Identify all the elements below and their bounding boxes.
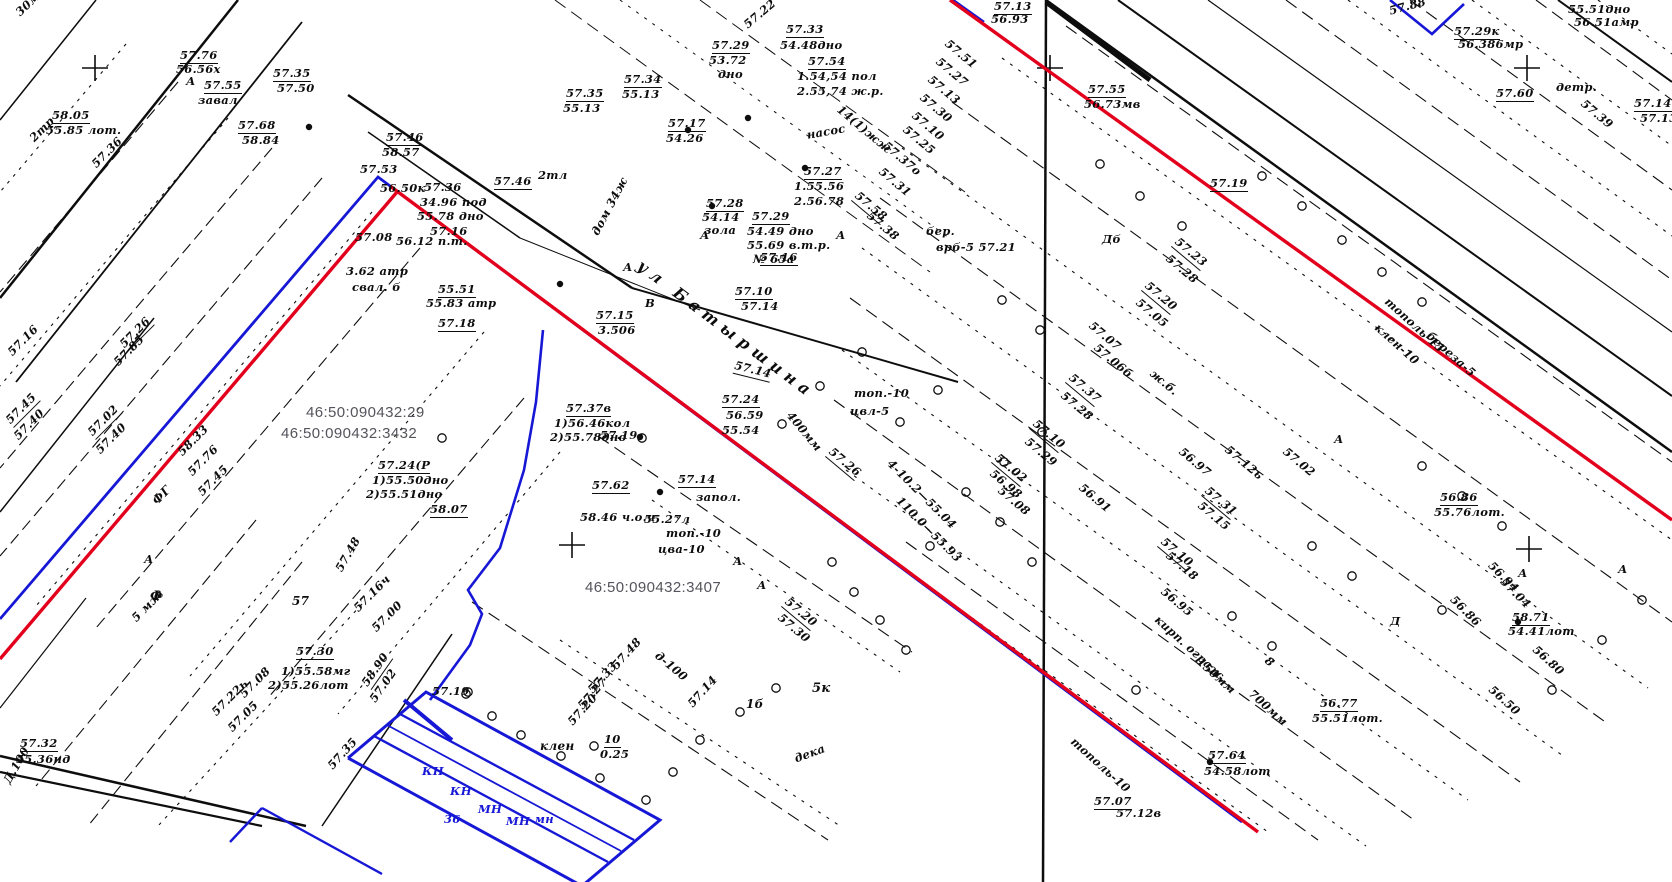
map-label: 57.17 (668, 118, 706, 132)
survey-line (952, 102, 1672, 622)
tree-circle (590, 742, 598, 750)
map-label: 57.19 (1210, 178, 1248, 192)
map-label: 58.07 (430, 504, 468, 518)
map-label: 55.13 (622, 89, 660, 101)
boundary-line-blue (374, 736, 608, 862)
map-label: 55.13 (563, 103, 601, 115)
survey-line (598, 436, 912, 652)
map-label: 2.56.78 (794, 196, 844, 208)
tree-circle (642, 796, 650, 804)
boundary-line-blue (262, 808, 382, 874)
tree-circle (1028, 558, 1036, 566)
map-label: 1.55.56 (794, 181, 844, 193)
map-label: 57.30 (296, 646, 334, 660)
map-label: В (645, 298, 655, 310)
map-label: 57.24 (722, 394, 760, 408)
map-label: дно (718, 69, 743, 81)
map-label: 2)55.26лот (268, 680, 349, 692)
map-label: 56.93 (991, 14, 1029, 26)
tree-circle (1298, 202, 1306, 210)
map-label: 57.33 (786, 24, 824, 38)
map-label: 57.14 (741, 301, 779, 313)
tree-circle (596, 774, 604, 782)
tree-circle (998, 296, 1006, 304)
map-label: 57.08 (355, 232, 393, 244)
map-label: 2.55,74 ж.р. (797, 86, 884, 98)
map-label: запол. (696, 492, 741, 504)
survey-line (0, 598, 86, 708)
tree-circle (1418, 298, 1426, 306)
map-label: 56.73мв (1084, 99, 1141, 111)
map-label: 57.24(Р (378, 460, 430, 474)
tree-circle (1096, 160, 1104, 168)
map-label: 58.05 (52, 110, 90, 124)
map-label: 57.15 (596, 310, 634, 324)
map-label: 1)55.50дно (372, 475, 449, 487)
map-label: А (1518, 568, 1528, 580)
map-label: А (836, 230, 846, 242)
tree-circle (1548, 686, 1556, 694)
survey-line (1046, 0, 1672, 452)
survey-line (834, 400, 1414, 820)
tree-circle (1136, 192, 1144, 200)
map-label: 57.29 (752, 211, 790, 225)
tree-circle (1228, 612, 1236, 620)
map-label: 57.35 (273, 68, 311, 82)
cadastral-number-label: 46:50:090432:3432 (281, 425, 417, 442)
tree-circle (517, 731, 525, 739)
tree-circle (1036, 326, 1044, 334)
map-label: 56.50к (380, 183, 426, 195)
map-label: 57.46 (494, 176, 532, 190)
map-label: 36 (444, 814, 461, 826)
tree-circle (1438, 606, 1446, 614)
tree-circle (1258, 172, 1266, 180)
survey-line (1002, 58, 1672, 540)
map-label: 57.46 (386, 132, 424, 146)
map-label: 57.60 (1496, 88, 1534, 102)
tree-circle (1418, 462, 1426, 470)
map-label: клен (540, 740, 575, 752)
tree-circle (1378, 268, 1386, 276)
map-label: свал. б (352, 282, 401, 294)
map-label: детр. (1556, 82, 1597, 94)
map-label: 57.16 (430, 226, 468, 238)
map-label: 57.12в (1116, 808, 1161, 820)
map-label: А (1334, 434, 1344, 446)
map-label: 56.51амр (1574, 17, 1639, 29)
tree-circle (438, 434, 446, 442)
map-label: топ.-10 (666, 528, 721, 540)
tree-circle (902, 646, 910, 654)
tree-circle (1598, 636, 1606, 644)
map-label: КН (422, 766, 444, 778)
map-label: А (700, 230, 710, 242)
map-label: 55.54 (722, 425, 760, 437)
map-label: 34.96 под (420, 197, 487, 209)
tree-circle (1338, 236, 1346, 244)
map-label: А (144, 554, 154, 566)
map-label: 57.19 (600, 430, 638, 442)
map-label: 2тл (538, 170, 568, 182)
survey-line (158, 604, 362, 826)
map-label: врб-5 57.21 (936, 242, 1016, 254)
map-label: 57.62 (592, 480, 630, 494)
map-label: А (757, 580, 767, 592)
tree-circle (850, 588, 858, 596)
map-label: 54.26 (666, 133, 704, 145)
map-label: 57.14 (1634, 98, 1672, 112)
map-label: 57.64 (1208, 750, 1246, 764)
tree-circle (736, 708, 744, 716)
map-label: 57.35 (566, 88, 604, 102)
map-label: Дб (1102, 234, 1121, 246)
map-label: 54.14 (702, 212, 740, 224)
map-label: 1)55.58мг (281, 666, 351, 678)
map-label: цвл-5 (850, 406, 889, 418)
tree-circle (934, 386, 942, 394)
tree-circle (778, 420, 786, 428)
map-label: 55.51лот. (1312, 713, 1383, 725)
map-label: 5к (812, 682, 830, 695)
tree-circle (876, 616, 884, 624)
map-label: 56.56х (176, 64, 221, 76)
boundary-line-blue (387, 725, 621, 851)
map-label: 56.86 (1440, 492, 1478, 506)
map-label: 57.13 (1640, 113, 1672, 125)
map-label: 58.57 (382, 147, 420, 159)
map-label: цва-10 (658, 544, 705, 556)
utility-dot (657, 489, 663, 495)
tree-circle (828, 558, 836, 566)
map-label: 10 (604, 734, 621, 748)
map-label: 57.50 (277, 83, 315, 95)
map-label: 57.19 (432, 686, 470, 698)
map-label: мн (534, 814, 554, 826)
map-label: 57.16 (760, 252, 798, 266)
boundary-line-blue (953, 0, 984, 22)
map-label: 57.29 (712, 40, 750, 54)
survey-line (902, 148, 1648, 688)
survey-line (0, 756, 306, 826)
map-label: бер. (926, 226, 955, 238)
map-label: 57.18 (438, 318, 476, 332)
map-label: МН (478, 804, 502, 816)
utility-dot (637, 434, 643, 440)
map-label: А (733, 556, 743, 568)
map-label: 57.53 (360, 164, 398, 176)
map-canvas[interactable]: 30мм чер.57.3557.50А57.55завал57.7656.56… (0, 0, 1672, 882)
map-label: 57.55 (1088, 84, 1126, 98)
map-label: 57.27 (804, 166, 842, 180)
map-label: 57.54 (808, 56, 846, 70)
survey-line (1348, 0, 1672, 236)
map-label: 56.77 (1320, 698, 1358, 712)
map-label: 55.83 атр (426, 298, 496, 310)
map-label: 53.72 (709, 55, 747, 67)
map-label: 56.386мр (1458, 39, 1523, 51)
map-label: А (186, 76, 196, 88)
map-label: 54.49 дно (747, 226, 814, 238)
map-label: 57.37в (566, 403, 611, 417)
map-label: 2)55.51дно (366, 489, 443, 501)
map-label: 55.85 лот. (46, 125, 121, 137)
tree-circle (772, 684, 780, 692)
tree-circle (1308, 542, 1316, 550)
survey-line (0, 0, 96, 120)
tree-circle (557, 752, 565, 760)
survey-line (842, 350, 1468, 800)
utility-dot (306, 124, 312, 130)
tree-circle (1498, 522, 1506, 530)
map-label: 58.46 ч.о.ч (580, 512, 655, 524)
utility-dot (745, 115, 751, 121)
map-label: 58.84 (242, 135, 280, 147)
map-label: 57.34 (624, 74, 662, 88)
tree-circle (669, 768, 677, 776)
map-label: 54.58лот (1204, 766, 1271, 778)
survey-line (16, 22, 302, 382)
tree-circle (896, 418, 904, 426)
map-label: 57.36 (424, 182, 462, 194)
map-label: 54.48дно (780, 40, 842, 52)
tree-circle (1132, 686, 1140, 694)
map-label: КН (450, 786, 472, 798)
map-label: 57 (292, 595, 309, 607)
tree-circle (696, 736, 704, 744)
map-label: топ.-10 (854, 388, 909, 400)
map-label: 56.59 (726, 410, 764, 422)
tree-circle (1348, 572, 1356, 580)
map-label: А (1618, 564, 1628, 576)
cadastral-number-label: 46:50:090432:3407 (585, 579, 721, 596)
map-label: 3.62 атр (346, 266, 408, 278)
tree-circle (1268, 642, 1276, 650)
map-label: Д (1390, 616, 1401, 628)
boundary-line-red (390, 186, 1258, 832)
map-label: 57.10 (735, 286, 773, 300)
map-label: 57.14 (678, 474, 716, 488)
map-label: 55.51дно (1568, 4, 1630, 16)
utility-dot (557, 281, 563, 287)
cadastral-number-label: 46:50:090432:29 (306, 404, 425, 421)
map-label: А (623, 262, 633, 274)
tree-circle (1178, 222, 1186, 230)
tree-circle (488, 712, 496, 720)
map-label: 1.54,54 пол (797, 71, 877, 83)
map-label: 0.25 (600, 749, 629, 761)
map-label: 57.68 (238, 120, 276, 134)
map-label: 3.506 (598, 325, 636, 337)
boundary-line-blue (0, 177, 1242, 822)
map-label: 54.41лот (1508, 626, 1575, 638)
map-label: 1б (746, 698, 764, 710)
map-label: 57.55 (204, 80, 242, 94)
survey-line (0, 772, 262, 826)
map-label: 55.78 дно (417, 211, 484, 223)
map-label: МН (506, 816, 530, 828)
map-label: завал (198, 95, 238, 107)
survey-line (472, 602, 828, 840)
map-label: 55.76лот. (1434, 507, 1505, 519)
survey-line (88, 562, 302, 826)
